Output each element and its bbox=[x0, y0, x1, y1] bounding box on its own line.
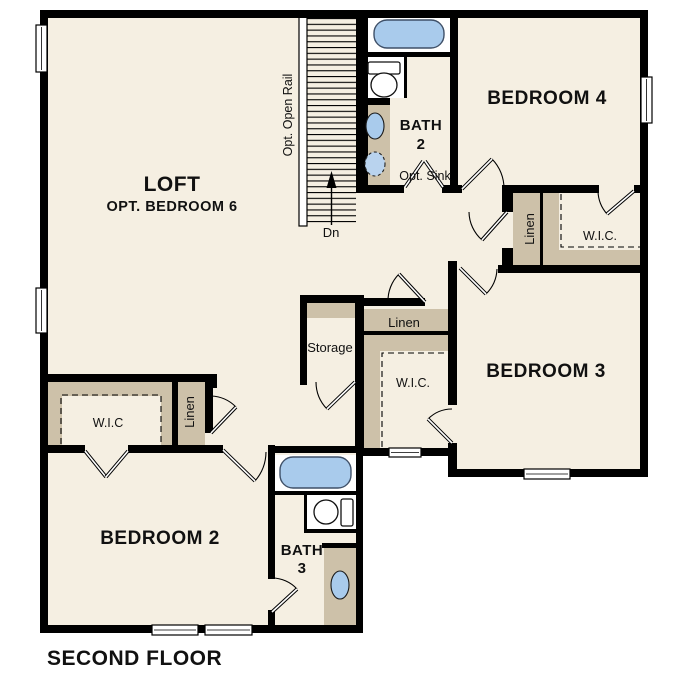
storage-label: Storage bbox=[307, 340, 353, 355]
bath2-sink-icon bbox=[366, 113, 384, 139]
hall-wic-shelf-left bbox=[364, 335, 380, 448]
wall-segment bbox=[355, 295, 364, 448]
wall-segment bbox=[40, 445, 85, 453]
bath3-sink-icon bbox=[331, 571, 349, 599]
bedroom4-wic-label: W.I.C. bbox=[583, 229, 617, 243]
wall-segment bbox=[442, 185, 462, 193]
floor-plan-drawing: LOFT OPT. BEDROOM 6 BEDROOM 4 BEDROOM 3 … bbox=[0, 0, 687, 687]
wall-segment bbox=[540, 193, 543, 265]
wall-segment bbox=[448, 443, 457, 471]
bedroom2-wic-label: W.I.C bbox=[93, 416, 124, 430]
floor-plan-page: LOFT OPT. BEDROOM 6 BEDROOM 4 BEDROOM 3 … bbox=[0, 0, 687, 687]
wall-segment bbox=[356, 185, 404, 193]
wall-segment bbox=[364, 52, 450, 57]
opt-sink-label: Opt. Sink bbox=[399, 169, 451, 183]
wall-segment bbox=[502, 185, 513, 212]
bedroom4-wic-shelf-bottom bbox=[543, 250, 640, 265]
loft-label: LOFT bbox=[144, 173, 201, 196]
wall-segment bbox=[356, 448, 363, 633]
bedroom2-linen-label: Linen bbox=[182, 396, 197, 428]
staircase bbox=[299, 14, 356, 226]
opt-open-rail-label: Opt. Open Rail bbox=[281, 74, 295, 157]
page-title: SECOND FLOOR bbox=[47, 647, 222, 670]
stair-open-rail bbox=[299, 14, 307, 226]
wall-segment bbox=[40, 10, 648, 18]
wall-segment bbox=[322, 543, 356, 548]
wall-segment bbox=[172, 382, 178, 445]
wall-segment bbox=[268, 446, 363, 453]
wall-segment bbox=[448, 261, 457, 405]
bedroom2-label: BEDROOM 2 bbox=[100, 528, 220, 549]
wall-segment bbox=[305, 529, 356, 533]
wall-segment bbox=[40, 625, 363, 633]
bath3-label: BATH bbox=[281, 542, 324, 559]
bath3-toilet-icon bbox=[314, 499, 353, 526]
hall-linen-label: Linen bbox=[388, 315, 420, 330]
wall-segment bbox=[634, 185, 648, 193]
wall-segment bbox=[356, 98, 390, 105]
bedroom4-wic-shelf-left bbox=[543, 193, 559, 250]
bedroom4-linen-label: Linen bbox=[522, 213, 537, 245]
wall-segment bbox=[268, 445, 275, 579]
wall-segment bbox=[128, 445, 223, 453]
loft-option-label: OPT. BEDROOM 6 bbox=[106, 199, 237, 215]
hall-wic-label: W.I.C. bbox=[396, 376, 430, 390]
stairs-down-label: Dn bbox=[323, 225, 340, 240]
wall-segment bbox=[364, 298, 425, 306]
wall-segment bbox=[498, 265, 648, 273]
wall-segment bbox=[450, 10, 458, 192]
bath2-label: BATH bbox=[400, 117, 443, 134]
bath3-tub-icon bbox=[280, 457, 351, 488]
wall-segment bbox=[40, 374, 217, 382]
wall-segment bbox=[404, 57, 407, 98]
wall-segment bbox=[205, 382, 213, 433]
wall-segment bbox=[505, 185, 599, 193]
wall-segment bbox=[364, 331, 448, 335]
bath2-number: 2 bbox=[417, 136, 426, 153]
bedroom4-label: BEDROOM 4 bbox=[487, 88, 607, 109]
bath2-toilet-icon bbox=[368, 62, 400, 97]
bedroom3-label: BEDROOM 3 bbox=[486, 361, 606, 382]
bath2-optional-sink-icon bbox=[365, 152, 385, 176]
wall-segment bbox=[304, 494, 307, 533]
wall-segment bbox=[300, 295, 364, 303]
wall-segment bbox=[275, 491, 356, 495]
bath3-number: 3 bbox=[298, 560, 307, 577]
bath2-tub-icon bbox=[374, 20, 444, 48]
storage-shelf bbox=[307, 303, 355, 318]
wall-segment bbox=[300, 295, 307, 385]
